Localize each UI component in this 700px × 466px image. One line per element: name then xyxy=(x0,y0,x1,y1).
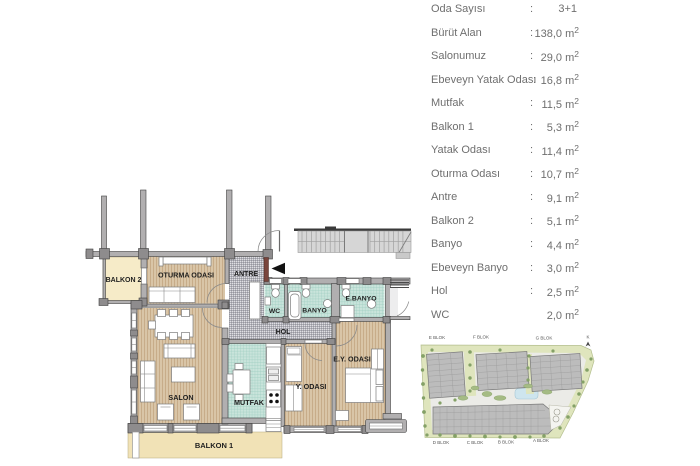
svg-text:D BLOK: D BLOK xyxy=(433,440,450,445)
svg-text:OTURMA ODASI: OTURMA ODASI xyxy=(158,271,214,280)
svg-text:BALKON 1: BALKON 1 xyxy=(195,441,233,450)
svg-text:E.Y. ODASI: E.Y. ODASI xyxy=(333,355,371,364)
svg-text:BALKON 2: BALKON 2 xyxy=(106,277,142,284)
svg-text:E.BANYO: E.BANYO xyxy=(346,296,377,303)
svg-text:Y. ODASI: Y. ODASI xyxy=(296,382,327,391)
svg-text:C BLOK: C BLOK xyxy=(467,440,484,445)
svg-text:E BLOK: E BLOK xyxy=(429,335,445,340)
svg-text:BANYO: BANYO xyxy=(302,308,327,315)
svg-text:F BLOK: F BLOK xyxy=(473,335,489,340)
svg-text:HOL: HOL xyxy=(276,329,292,336)
svg-text:G BLOK: G BLOK xyxy=(536,336,553,341)
svg-text:A BLOK: A BLOK xyxy=(533,438,549,443)
svg-text:MUTFAK: MUTFAK xyxy=(234,398,265,407)
svg-text:B BLOK: B BLOK xyxy=(498,440,514,445)
svg-text:K: K xyxy=(586,335,589,340)
svg-text:SALON: SALON xyxy=(168,393,193,402)
svg-text:ANTRE: ANTRE xyxy=(234,271,258,278)
svg-text:WC: WC xyxy=(269,308,280,315)
